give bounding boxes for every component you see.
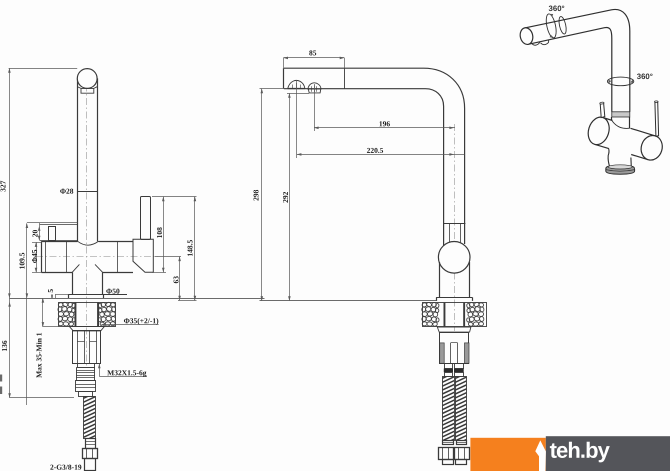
- svg-text:5: 5: [46, 289, 55, 293]
- svg-text:M32X1.5-6g: M32X1.5-6g: [107, 368, 147, 377]
- svg-text:20: 20: [31, 230, 40, 238]
- svg-text:2-G3/8-19: 2-G3/8-19: [50, 463, 82, 471]
- svg-text:360°: 360°: [549, 4, 565, 13]
- svg-text:85: 85: [309, 48, 317, 57]
- svg-text:148.5: 148.5: [186, 240, 195, 257]
- svg-text:136: 136: [0, 340, 9, 352]
- svg-text:196: 196: [379, 119, 391, 128]
- svg-text:298: 298: [251, 189, 260, 201]
- svg-text:360°: 360°: [637, 72, 653, 81]
- svg-text:63: 63: [171, 276, 180, 284]
- svg-text:Max 35-Min 1: Max 35-Min 1: [35, 332, 44, 378]
- svg-text:327: 327: [0, 180, 8, 192]
- svg-text:292: 292: [281, 191, 290, 203]
- svg-text:Φ35(+2/-1): Φ35(+2/-1): [124, 316, 160, 325]
- svg-text:109.5: 109.5: [17, 252, 26, 269]
- svg-text:Φ50: Φ50: [106, 287, 120, 296]
- svg-text:108: 108: [155, 227, 164, 239]
- svg-text:teh.by: teh.by: [550, 438, 611, 463]
- svg-text:Φ28: Φ28: [60, 187, 74, 196]
- svg-text:Φ45: Φ45: [30, 249, 39, 263]
- svg-text:220.5: 220.5: [367, 146, 384, 155]
